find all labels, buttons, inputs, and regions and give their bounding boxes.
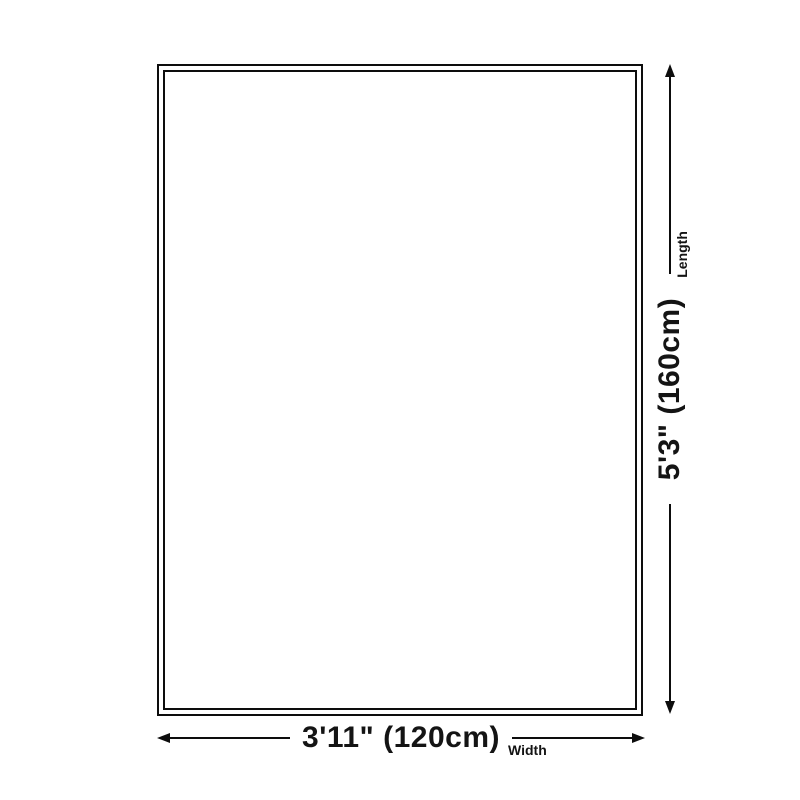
- rug-outline-inner: [163, 70, 637, 710]
- length-dimension-line-lower: [669, 504, 671, 701]
- arrowhead-right-icon: [632, 733, 645, 743]
- rug-outline-outer: [157, 64, 643, 716]
- width-value: 3'11" (120cm): [302, 723, 500, 753]
- arrowhead-down-icon: [665, 701, 675, 714]
- width-dimension: 3'11" (120cm) Width: [157, 708, 645, 768]
- length-value: 5'3" (160cm): [655, 298, 685, 480]
- length-dimension: 5'3" (160cm) Length: [640, 64, 700, 714]
- width-dimension-line-left: [170, 737, 290, 739]
- size-diagram: 3'11" (120cm) Width 5'3" (160cm) Length: [0, 0, 800, 800]
- width-label: Width: [508, 742, 547, 758]
- length-label: Length: [674, 231, 690, 278]
- arrowhead-left-icon: [157, 733, 170, 743]
- width-dimension-line-right: Width: [512, 737, 632, 739]
- arrowhead-up-icon: [665, 64, 675, 77]
- length-dimension-line-upper: Length: [669, 77, 671, 274]
